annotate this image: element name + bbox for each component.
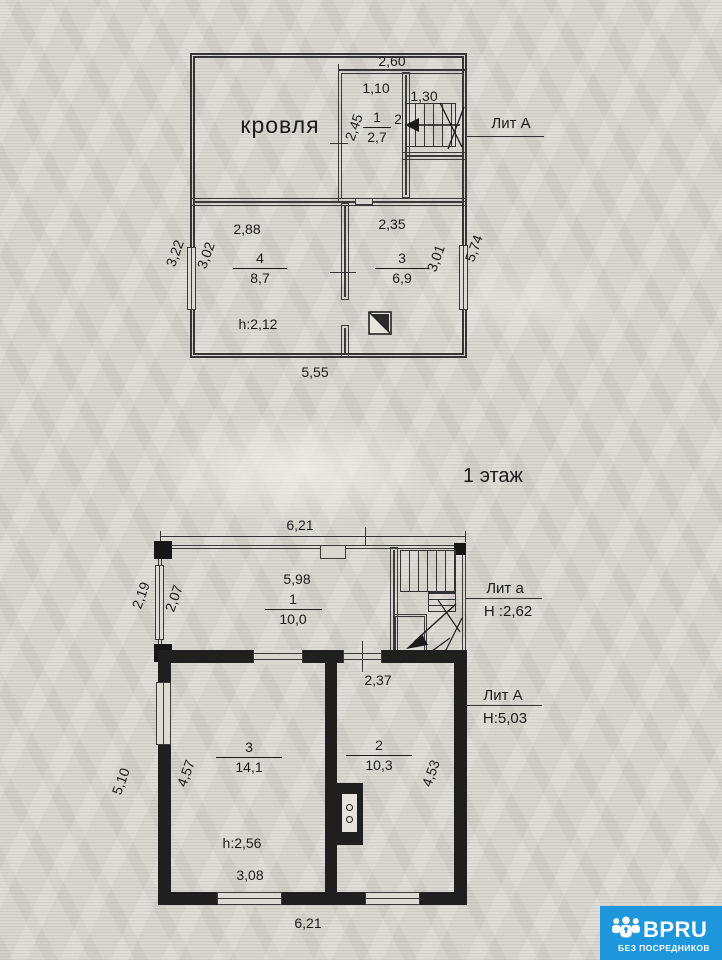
dim-label: 6,21	[278, 916, 338, 931]
dim-label: 2,60	[362, 54, 422, 69]
fraction-bar	[233, 268, 287, 269]
room-number: 2	[346, 738, 412, 753]
window	[217, 892, 282, 905]
dim-label: 2,19	[127, 574, 154, 617]
room-area: 8,7	[228, 271, 292, 286]
dim-label: 4,57	[172, 752, 199, 795]
room-label: 4 8,7	[228, 251, 292, 287]
wall	[341, 203, 349, 300]
dim-label: 2,37	[348, 673, 408, 688]
wall	[190, 198, 467, 206]
window	[156, 682, 171, 745]
height-label: Н:5,03	[468, 711, 542, 727]
room-area: 2,7	[357, 130, 397, 145]
lit-label: Лит А	[468, 688, 538, 704]
fraction-bar	[346, 755, 412, 756]
room-number: 2	[390, 112, 406, 127]
dim-label: 6,21	[270, 518, 330, 533]
logo-brand-text: BPRU	[643, 917, 707, 943]
fraction-bar	[216, 757, 282, 758]
door-opening	[253, 650, 303, 663]
wall	[454, 650, 467, 905]
wall-corner	[154, 541, 172, 559]
wall	[341, 325, 349, 358]
height-label: h:2,56	[202, 836, 282, 851]
fraction-bar	[265, 609, 322, 610]
dim-label: 2,35	[362, 217, 422, 232]
dimension-line	[338, 69, 466, 70]
dimension-line	[160, 536, 466, 537]
dim-label: 5,55	[285, 365, 345, 380]
dim-label: 4,53	[417, 752, 444, 795]
room-label: 1 10,0	[263, 592, 323, 628]
fraction-bar	[375, 268, 429, 269]
lit-underline	[466, 705, 542, 706]
roof-title: кровля	[222, 113, 338, 137]
dim-label: 5,10	[107, 760, 134, 803]
dim-label: 3,22	[161, 232, 188, 275]
room-area: 14,1	[216, 760, 282, 775]
dim-label: 3,08	[215, 868, 285, 883]
window	[187, 247, 196, 310]
dim-label: 5,98	[267, 572, 327, 587]
lit-underline	[466, 598, 542, 599]
stair-direction-arrow-icon	[398, 598, 464, 656]
dimension-tick	[338, 64, 339, 75]
stove-inner	[342, 794, 357, 832]
stove-burner	[346, 816, 353, 823]
logo-tagline-text: БЕЗ ПОСРЕДНИКОВ	[612, 943, 716, 953]
room-area: 10,0	[263, 612, 323, 627]
dimension-tick	[465, 64, 466, 75]
stair-direction-arrow-icon	[402, 101, 466, 151]
lit-underline	[466, 136, 544, 137]
dimension-tick	[330, 272, 356, 273]
floor-title: 1 этаж	[443, 466, 543, 487]
dimension-tick	[365, 527, 366, 546]
dim-label: 1,30	[398, 89, 450, 104]
scanned-floor-plan-sheet: Лит А кровля 2,60 1,10 1,30 2,45 1 2,7 2…	[0, 0, 722, 960]
room-number: 1	[263, 592, 323, 607]
room-number: 3	[216, 740, 282, 755]
floor-plan-first-floor: 1 этаж 6,21 5,98 1 10,0	[0, 440, 722, 960]
window	[365, 892, 420, 905]
room-label: 2 10,3	[346, 738, 412, 774]
dimension-tick	[465, 531, 466, 542]
wall-notch	[320, 546, 346, 559]
people-group-icon	[610, 916, 642, 942]
chimney-symbol	[368, 311, 392, 335]
stair-flight	[400, 550, 456, 592]
room-number: 4	[228, 251, 292, 266]
room-area: 10,3	[346, 758, 412, 773]
door-opening	[355, 199, 373, 205]
dimension-tick	[362, 641, 363, 672]
dim-label: 2,88	[217, 222, 277, 237]
wall	[402, 152, 466, 160]
fraction-bar	[363, 127, 391, 128]
height-label: Н :2,62	[468, 604, 548, 620]
wall	[158, 650, 467, 663]
lit-label: Лит А	[476, 116, 546, 132]
stove-burner	[346, 804, 353, 811]
stove-symbol	[337, 783, 363, 845]
floor-plan-attic: Лит А кровля 2,60 1,10 1,30 2,45 1 2,7 2…	[0, 0, 722, 420]
height-label: h:2,12	[218, 317, 298, 332]
wall	[325, 663, 337, 892]
lit-label: Лит а	[470, 581, 540, 597]
room-label: 3 14,1	[216, 740, 282, 776]
dim-label: 1,10	[348, 81, 404, 96]
bpru-logo-badge: BPRU БЕЗ ПОСРЕДНИКОВ	[600, 906, 722, 960]
wall	[158, 892, 467, 905]
